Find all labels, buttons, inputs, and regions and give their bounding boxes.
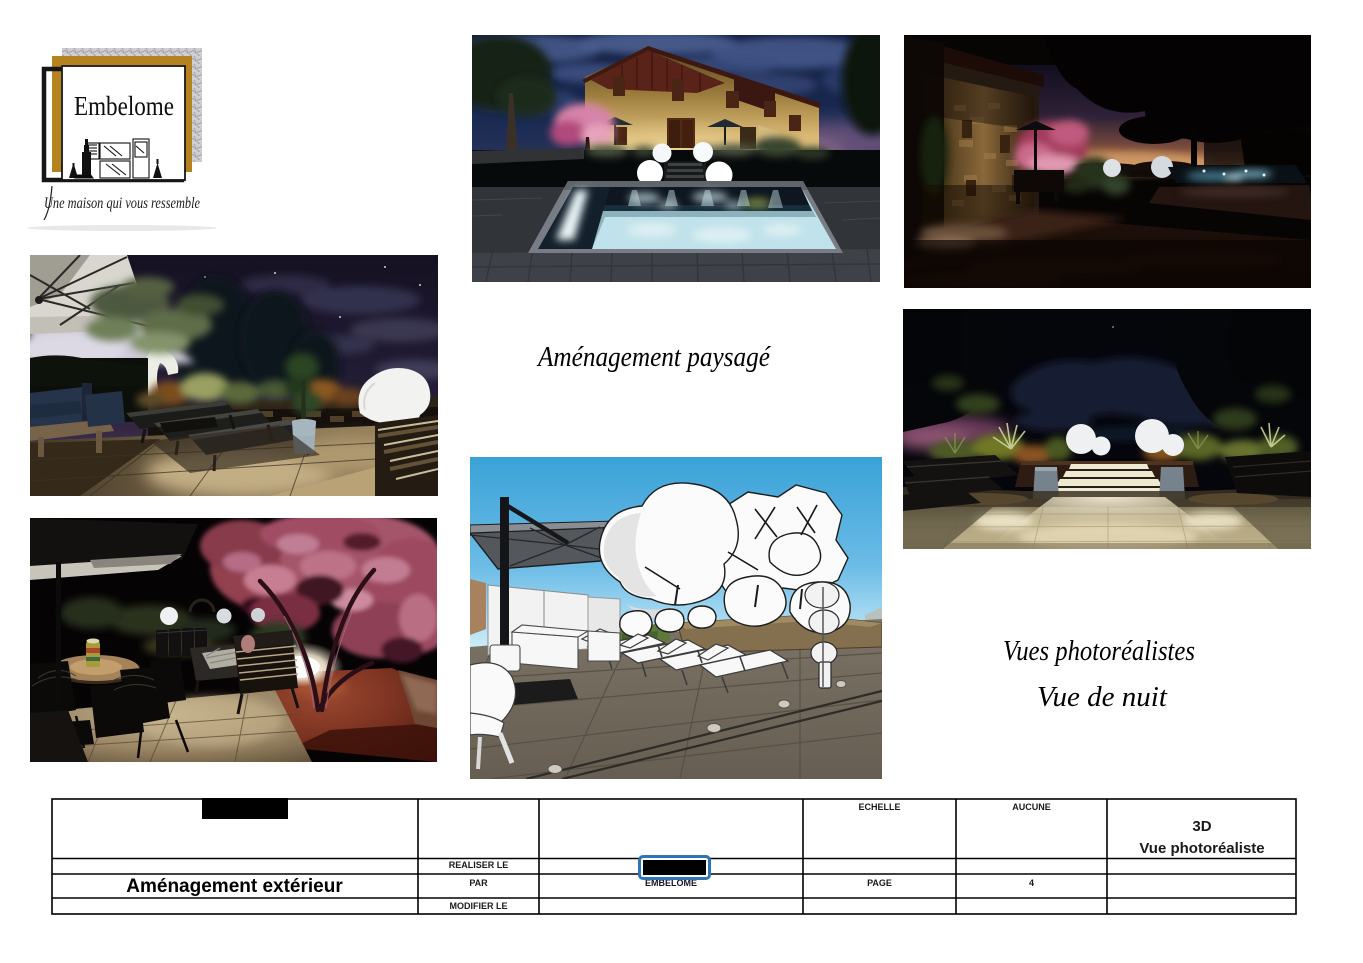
svg-text:Embelome: Embelome [74, 91, 174, 121]
svg-text:Une maison qui vous ressemble: Une maison qui vous ressemble [44, 195, 200, 212]
